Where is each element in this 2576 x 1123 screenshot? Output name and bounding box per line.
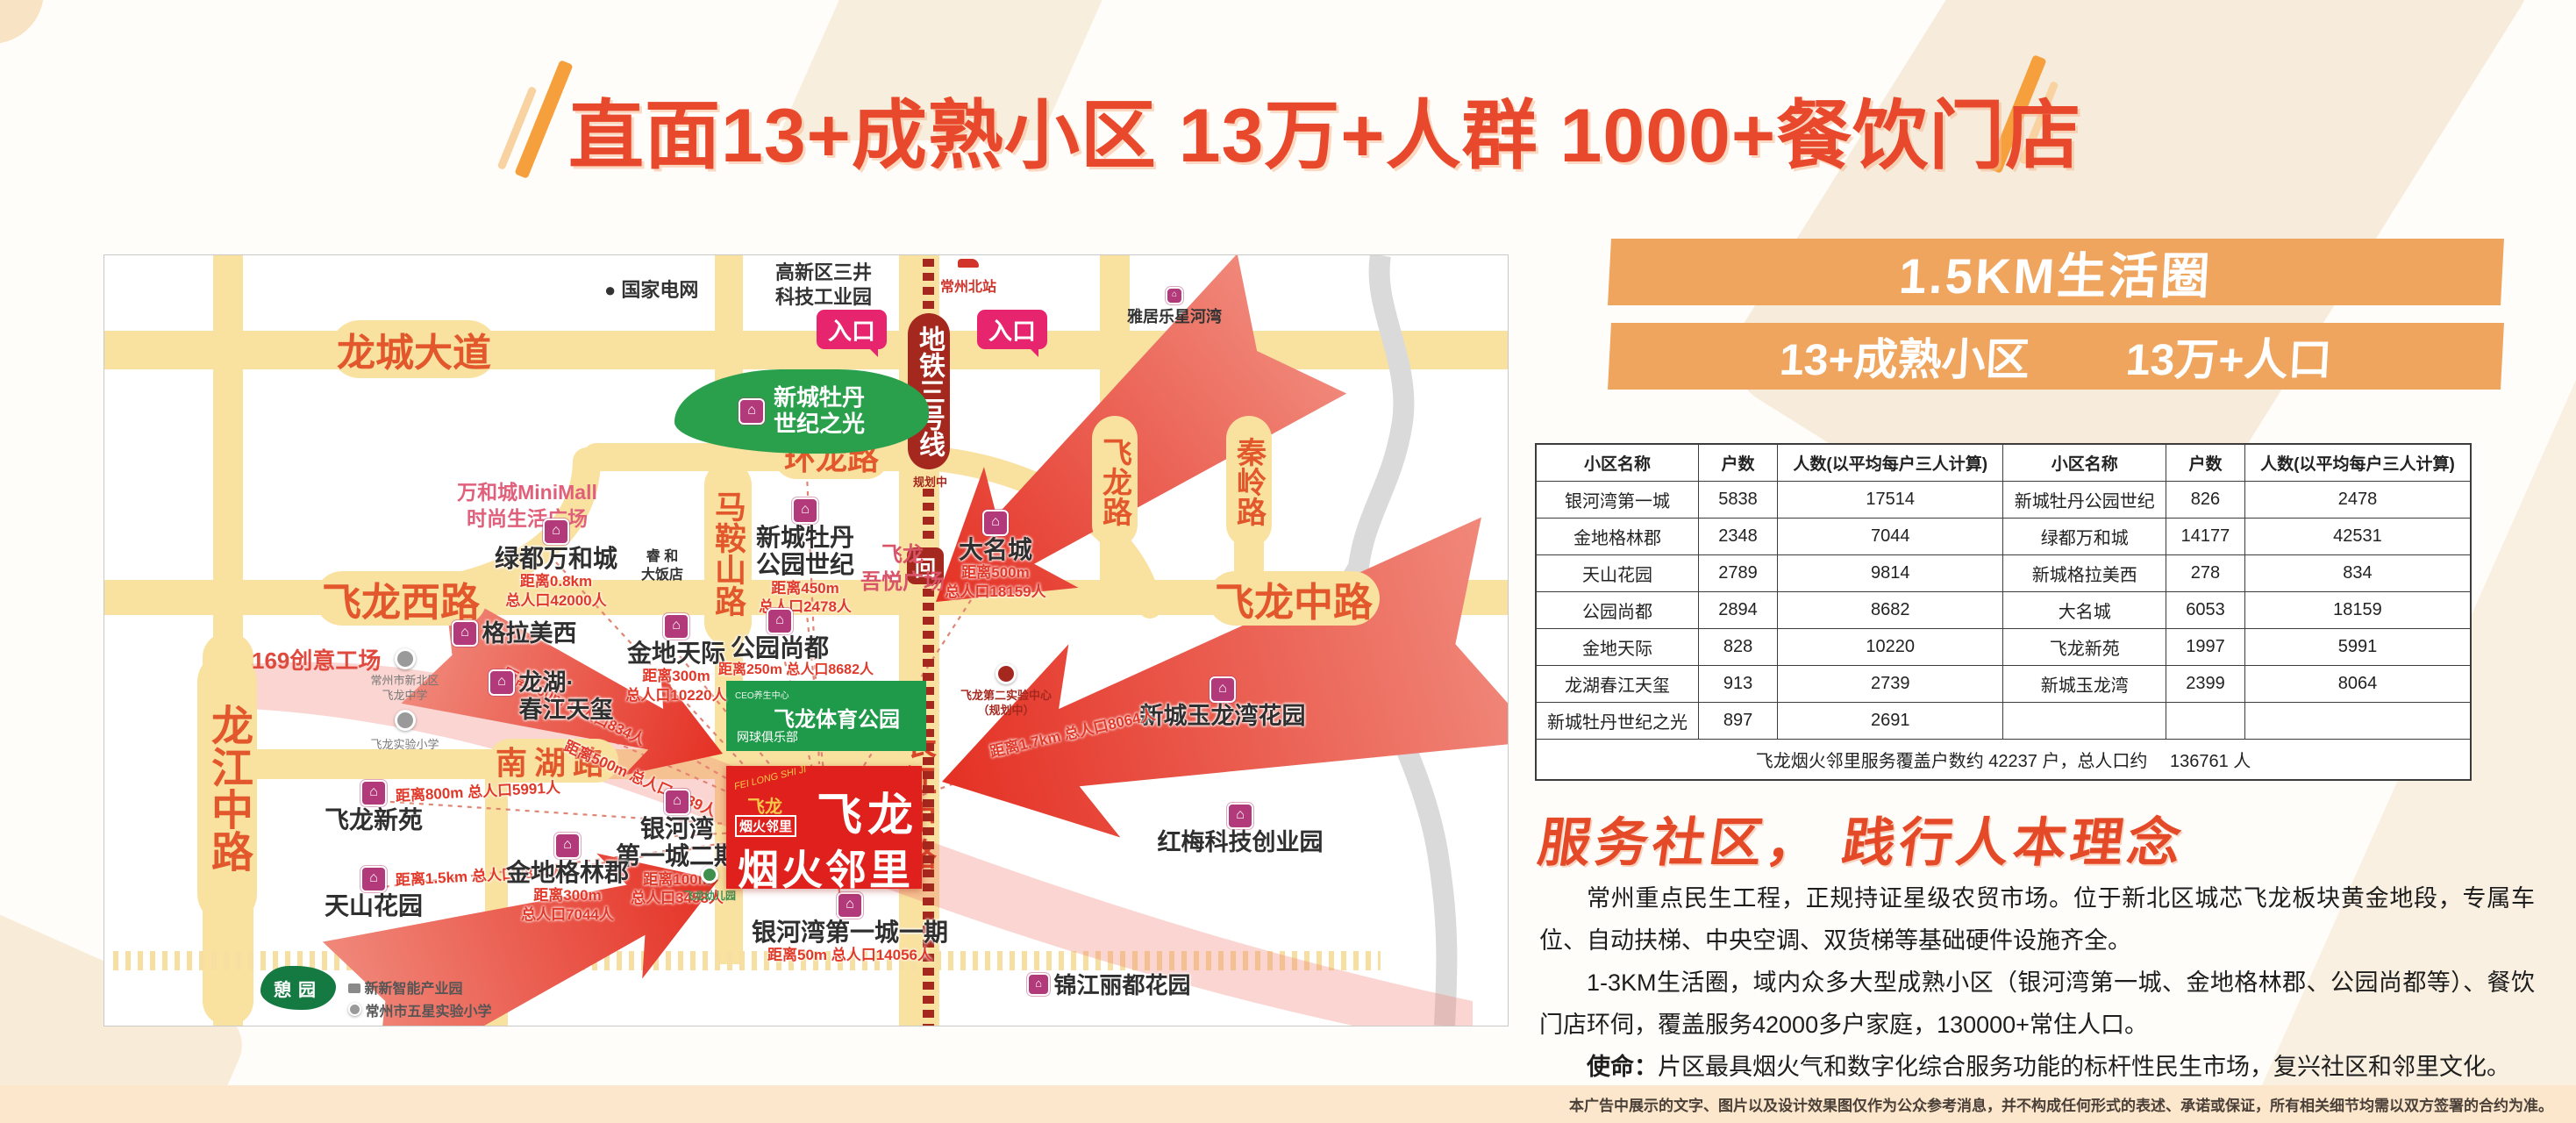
community-table: 小区名称户数 人数(以平均每户三人计算)小区名称 户数人数(以平均每户三人计算)… — [1535, 443, 2472, 781]
poi-xinxin: 新新智能产业园 — [348, 976, 462, 998]
road-label-feilong-mid: 飞龙中路 — [1208, 571, 1380, 626]
poi-feilong-zhongxue: 常州市新北区飞龙中学 — [359, 648, 451, 704]
poi-gaoxin: 高新区三井科技工业园 — [749, 261, 898, 309]
banner-stats-left: 13+成熟小区 — [1778, 325, 2031, 388]
poi-shiyan-zhongxin: 飞龙第二实验中心（规划中） — [945, 663, 1067, 719]
building-icon: ⌂ — [739, 398, 765, 425]
paragraph-3: 使命：片区最具烟火气和数字化综合服务功能的标杆性民生市场，复兴社区和邻里文化。 — [1539, 1046, 2535, 1088]
bottom-strip: 本广告中展示的文字、图片以及设计效果图仅作为公众参考消息，并不构成任何形式的表述… — [0, 1085, 2576, 1123]
building-icon: ⌂ — [360, 780, 387, 806]
road-label-feilong-west: 飞龙西路 — [315, 571, 487, 626]
poi-beizhan: 常州北站 — [920, 259, 1017, 296]
banner-stats: 13+成熟小区 13万+人口 — [1608, 323, 2504, 390]
entrance-bubble-west: 入口 — [817, 310, 887, 349]
building-icon: ⌂ — [982, 510, 1009, 536]
subject-logo-line1: 飞龙 — [747, 792, 782, 818]
building-icon: ⌂ — [663, 613, 689, 640]
table-header-row: 小区名称户数 人数(以平均每户三人计算)小区名称 户数人数(以平均每户三人计算) — [1536, 444, 2471, 482]
building-icon: ⌂ — [452, 620, 478, 647]
building-icon: ⌂ — [1210, 676, 1236, 703]
school-pin-icon — [348, 1003, 361, 1016]
metro-line-dashes-mid — [923, 489, 934, 545]
poi-guowang: ● 国家电网 — [604, 275, 698, 303]
building-icon: ⌂ — [792, 497, 818, 524]
kindergarten-pin-icon — [701, 866, 718, 883]
paragraph-1: 常州重点民生工程，正规持证星级农贸市场。位于新北区城芯飞龙板块黄金地段，专属车位… — [1539, 877, 2535, 962]
poi-ruihe: 睿 和大饭店 — [627, 548, 697, 585]
poi-longhu: ⌂ 龙湖·春江天玺 — [489, 669, 613, 724]
building-icon: ⌂ — [543, 519, 569, 545]
banner-living-circle: 1.5KM生活圈 — [1608, 239, 2504, 305]
river — [1357, 255, 1446, 1026]
factory-icon — [348, 984, 360, 993]
building-icon: ⌂ — [1166, 287, 1183, 304]
building-icon: ⌂ — [1227, 803, 1253, 829]
school-pin-icon — [395, 710, 416, 731]
subject-main-line1: 飞龙 — [817, 778, 918, 844]
pin-icon — [995, 663, 1017, 684]
poster: 直面13+成熟小区 13万+人群 1000+餐饮门店 — [0, 0, 2576, 1123]
table-row: 龙湖春江天玺9132739新城玉龙湾23998064 — [1536, 666, 2471, 703]
subject-logo-arc: FEI LONG SHI JI — [733, 764, 808, 792]
road-label-feilong-road: 飞龙路 — [1092, 416, 1138, 547]
poi-yinhewan1: ⌂ 银河湾第一城一期 距离50m 总人口14056人 — [736, 892, 964, 965]
mission-label: 使命： — [1587, 1054, 1658, 1080]
subject-main-line2: 烟火邻里 — [733, 836, 917, 897]
table-footer-row: 飞龙烟火邻里服务覆盖户数约 42237 户，总人口约 136761 人 — [1536, 740, 2471, 781]
table-row: 天山花园27899814新城格拉美西278834 — [1536, 555, 2471, 592]
table-row: 银河湾第一城583817514新城牡丹公园世纪8262478 — [1536, 482, 2471, 519]
poi-lvdu: ⌂ 绿都万和城 距离0.8km 总人口42000人 — [482, 519, 631, 610]
poi-shiyan-xiaoxue: 飞龙实验小学 — [359, 710, 451, 752]
paragraph-2: 1-3KM生活圈，域内众多大型成熟小区（银河湾第一城、金地格林郡、公园尚都等）、… — [1539, 962, 2535, 1046]
poi-jinjiang: ⌂ 锦江丽都花园 — [1027, 973, 1190, 998]
dot-icon: ● — [604, 279, 616, 301]
poi-hongmei: ⌂ 红梅科技创业园 — [1152, 803, 1328, 855]
sports-park: CEO养生中心 飞龙体育公园 网球俱乐部 — [726, 681, 926, 751]
poi-jindi-gelin: ⌂ 金地格林郡 距离300m 总人口7044人 — [497, 833, 638, 924]
poi-damingcheng: ⌂ 大名城 距离500m 总人口18159人 — [936, 510, 1055, 601]
building-icon: ⌂ — [554, 833, 581, 859]
poi-gongyuan-shangdu: ⌂ 公园尚都 距离250m 总人口8682人 — [718, 608, 841, 679]
road-label-longcheng: 龙城大道 — [331, 320, 497, 378]
table-row: 新城牡丹世纪之光8972691 — [1536, 703, 2471, 740]
metro-status: 规划中 — [913, 473, 947, 490]
poi-wuxing: 常州市五星实验小学 — [348, 999, 491, 1020]
building-icon: ⌂ — [489, 669, 515, 696]
road-label-longjiang: 龙江中路 — [197, 652, 257, 924]
table-row: 公园尚都28948682大名城605318159 — [1536, 592, 2471, 629]
bg-corner-topleft — [0, 0, 44, 44]
building-icon: ⌂ — [767, 608, 793, 634]
section-heading: 服务社区， 践行人本理念 — [1534, 800, 2191, 876]
green-block-mudan: ⌂ 新城牡丹世纪之光 — [674, 369, 929, 454]
park-sub-label: CEO养生中心 — [735, 688, 789, 701]
road-longcheng-avenue — [104, 331, 1508, 369]
table-row: 金地格林郡23487044绿都万和城1417742531 — [1536, 519, 2471, 555]
poi-qiyuan: 憩园 — [260, 966, 336, 1010]
road-label-qinling: 秦岭路 — [1226, 416, 1272, 547]
building-icon: ⌂ — [1027, 973, 1050, 996]
body-paragraphs: 常州重点民生工程，正规持证星级农贸市场。位于新北区城芯飞龙板块黄金地段，专属车位… — [1539, 877, 2535, 1088]
disclaimer-text: 本广告中展示的文字、图片以及设计效果图仅作为公众参考消息，并不构成任何形式的表述… — [1569, 1093, 2576, 1115]
poi-jindi-tianji: ⌂ 金地天际 距离300m 总人口10220人 — [620, 613, 732, 705]
entrance-bubble-east: 入口 — [977, 310, 1047, 349]
subject-logo-line2: 烟火邻里 — [735, 815, 796, 837]
poi-gelameixi: ⌂ 格拉美西 — [452, 620, 576, 647]
subject-market-box: FEI LONG SHI JI 飞龙 烟火邻里 飞龙 烟火邻里 — [726, 766, 922, 889]
school-pin-icon — [395, 648, 416, 669]
poi-yajule: ⌂ 雅居乐星河湾 — [1104, 285, 1245, 327]
area-map: 龙城大道 飞龙西路 飞龙中路 南湖路 环龙路 马鞍山路 龙江中路 飞龙路 秦岭路… — [103, 254, 1509, 1026]
park-club: 网球俱乐部 — [737, 728, 798, 746]
poi-mudan-gongyuan: ⌂ 新城牡丹公园世纪 距离450m 总人口2478人 — [751, 497, 860, 616]
banner-stats-right: 13万+人口 — [2124, 325, 2334, 388]
table-row: 金地天际82810220飞龙新苑19975991 — [1536, 629, 2471, 666]
building-icon: ⌂ — [664, 789, 690, 815]
page-title: 直面13+成熟小区 13万+人群 1000+餐饮门店 — [568, 74, 2081, 183]
train-icon — [958, 259, 979, 270]
building-icon: ⌂ — [360, 866, 387, 892]
